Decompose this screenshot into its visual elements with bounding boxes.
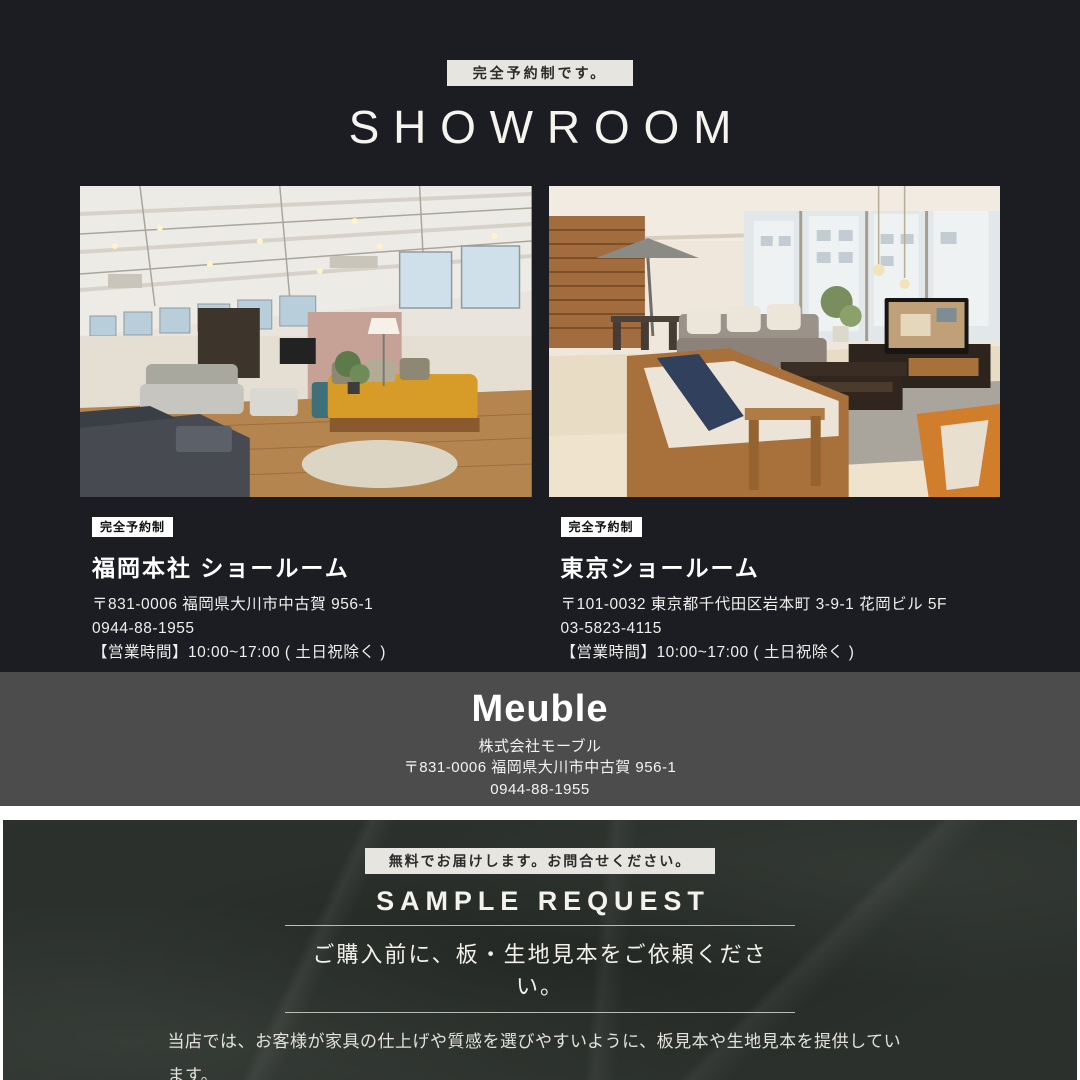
company-phone: 0944-88-1955: [0, 779, 1080, 801]
tokyo-showroom-name: 東京ショールーム: [561, 549, 1001, 583]
fukuoka-showroom-details: 〒831-0006 福岡県大川市中古賀 956-1 0944-88-1955 【…: [92, 593, 532, 665]
company-name: 株式会社モーブル: [0, 736, 1080, 758]
sample-request-description-line1: 当店では、お客様が家具の仕上げや質感を選びやすいように、板見本や生地見本を提供し…: [168, 1025, 913, 1080]
company-address: 〒831-0006 福岡県大川市中古賀 956-1: [0, 757, 1080, 779]
tokyo-reservation-badge: 完全予約制: [561, 517, 642, 537]
sample-request-section: 無料でお届けします。お問合せください。 SAMPLE REQUEST ご購入前に…: [3, 820, 1077, 1080]
tokyo-showroom-details: 〒101-0032 東京都千代田区岩本町 3-9-1 花岡ビル 5F 03-58…: [561, 593, 1001, 665]
showroom-section: 完全予約制です。 SHOWROOM: [0, 0, 1080, 672]
fukuoka-showroom-info: 完全予約制 福岡本社 ショールーム 〒831-0006 福岡県大川市中古賀 95…: [80, 517, 532, 665]
company-details: 株式会社モーブル 〒831-0006 福岡県大川市中古賀 956-1 0944-…: [0, 736, 1080, 801]
company-footer: Meuble 株式会社モーブル 〒831-0006 福岡県大川市中古賀 956-…: [0, 672, 1080, 806]
sample-request-lead: ご購入前に、板・生地見本をご依頼ください。: [285, 925, 795, 1013]
sample-request-heading: SAMPLE REQUEST: [3, 886, 1077, 917]
page: 完全予約制です。 SHOWROOM: [0, 0, 1080, 1080]
tokyo-showroom-info: 完全予約制 東京ショールーム 〒101-0032 東京都千代田区岩本町 3-9-…: [549, 517, 1001, 665]
showroom-heading: SHOWROOM: [0, 100, 1080, 154]
showroom-photos: [0, 186, 1080, 497]
fukuoka-hours: 【営業時間】10:00~17:00 ( 土日祝除く ): [92, 641, 532, 665]
fukuoka-showroom-photo: [80, 186, 532, 497]
tokyo-hours: 【営業時間】10:00~17:00 ( 土日祝除く ): [561, 641, 1001, 665]
free-delivery-badge: 無料でお届けします。お問合せください。: [365, 848, 716, 874]
meuble-logo: Meuble: [0, 688, 1080, 732]
fukuoka-address: 〒831-0006 福岡県大川市中古賀 956-1: [92, 593, 532, 617]
fukuoka-phone: 0944-88-1955: [92, 617, 532, 641]
sample-request-wrapper: 無料でお届けします。お問合せください。 SAMPLE REQUEST ご購入前に…: [0, 806, 1080, 1080]
reservation-only-badge: 完全予約制です。: [447, 60, 634, 86]
tokyo-address: 〒101-0032 東京都千代田区岩本町 3-9-1 花岡ビル 5F: [561, 593, 1001, 617]
tokyo-showroom-photo: [549, 186, 1001, 497]
sample-request-description: 当店では、お客様が家具の仕上げや質感を選びやすいように、板見本や生地見本を提供し…: [168, 1025, 913, 1080]
showroom-captions: 完全予約制 福岡本社 ショールーム 〒831-0006 福岡県大川市中古賀 95…: [0, 517, 1080, 665]
fukuoka-reservation-badge: 完全予約制: [92, 517, 173, 537]
fukuoka-showroom-name: 福岡本社 ショールーム: [92, 549, 532, 583]
tokyo-phone: 03-5823-4115: [561, 617, 1001, 641]
